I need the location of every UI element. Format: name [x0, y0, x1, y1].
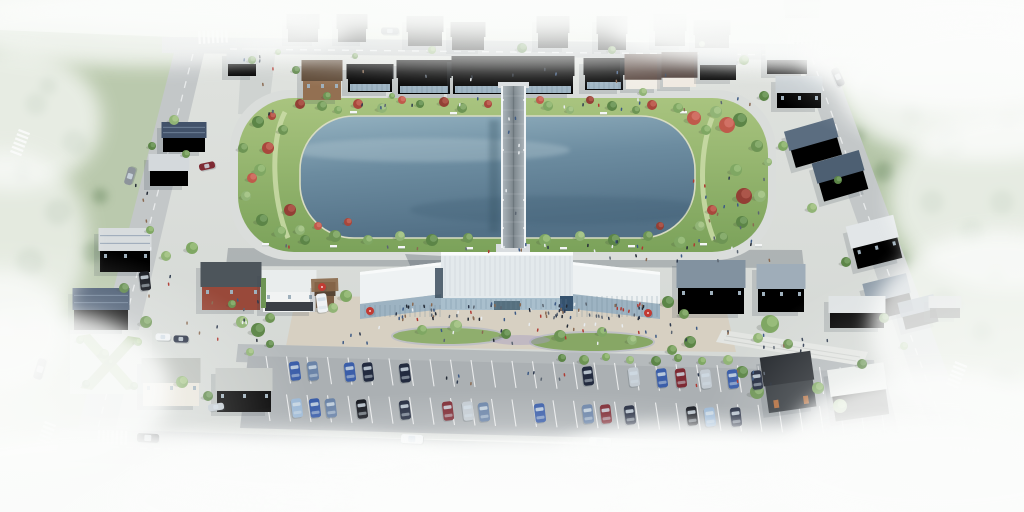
house: [144, 154, 190, 190]
tree-highlight: [578, 232, 584, 238]
tree-highlight: [249, 348, 254, 353]
parked-car: [699, 369, 713, 390]
car-windshield: [408, 436, 415, 443]
person-dot: [411, 104, 413, 107]
tree-highlight: [714, 107, 721, 114]
person-dot: [763, 334, 765, 337]
parked-car: [315, 293, 329, 314]
person-dot: [465, 247, 467, 250]
tree-highlight: [398, 232, 404, 238]
tree-highlight: [244, 192, 250, 198]
person-dot: [803, 344, 805, 347]
car-windshield: [160, 335, 165, 339]
house: [771, 76, 823, 112]
blossom-highlight: [317, 222, 322, 227]
person-dot: [763, 178, 765, 181]
bench: [466, 247, 473, 249]
person-dot: [135, 184, 137, 187]
blossom-highlight: [250, 174, 256, 180]
bench: [560, 247, 567, 249]
tree-highlight: [786, 340, 792, 346]
person-dot: [525, 243, 527, 246]
tree-highlight: [303, 236, 309, 242]
tree-highlight: [206, 392, 212, 398]
shop-building: [342, 64, 394, 96]
parked-car: [290, 398, 304, 419]
glass-accent: [435, 268, 443, 298]
tree-highlight: [666, 297, 673, 304]
window: [267, 295, 270, 299]
blossom-highlight: [710, 206, 716, 212]
tree-highlight: [682, 310, 688, 316]
building-roof: [347, 64, 394, 79]
person-dot: [752, 377, 754, 380]
person-dot: [417, 247, 419, 250]
tree-highlight: [460, 104, 466, 110]
person-dot: [763, 345, 765, 348]
tree-highlight: [391, 93, 395, 97]
window: [798, 96, 801, 100]
tree-highlight: [605, 353, 610, 358]
tree-highlight: [646, 232, 652, 238]
person-dot: [681, 254, 683, 257]
parked-car: [674, 368, 688, 389]
window: [780, 292, 783, 296]
tree-highlight: [582, 356, 588, 362]
person-dot: [638, 306, 640, 309]
person-dot: [288, 245, 290, 248]
water-reflection: [410, 196, 710, 224]
window: [221, 394, 224, 398]
window: [206, 290, 209, 294]
fog-patch: [570, 426, 750, 474]
bridge-lamp: [523, 149, 525, 151]
building-roof: [677, 260, 746, 288]
house: [94, 228, 152, 276]
tree-highlight: [543, 235, 550, 242]
grass-mound: [393, 328, 503, 344]
fog-patch: [250, 444, 430, 488]
parked-car: [361, 362, 375, 383]
tree-highlight: [419, 100, 424, 105]
person-dot: [563, 105, 565, 108]
window: [254, 290, 257, 294]
window: [170, 386, 173, 390]
person-dot: [596, 314, 598, 318]
tree-highlight: [738, 114, 746, 122]
tree-highlight: [781, 142, 787, 148]
tree-highlight: [816, 383, 823, 390]
umbrella-pole: [321, 286, 323, 288]
person-dot: [561, 315, 563, 319]
person-dot: [671, 331, 673, 334]
person-dot: [148, 294, 150, 297]
bench: [330, 245, 337, 247]
person-dot: [604, 328, 606, 331]
building-roof: [776, 76, 823, 93]
tree-highlight: [122, 284, 128, 290]
tree-highlight: [678, 237, 685, 244]
tree-highlight: [258, 165, 265, 172]
blossom-highlight: [347, 218, 352, 223]
tree-highlight: [755, 141, 762, 148]
person-dot: [473, 317, 475, 320]
tree-highlight: [149, 226, 154, 231]
bench: [628, 245, 635, 247]
person-dot: [544, 68, 546, 71]
person-dot: [696, 327, 698, 330]
tree-highlight: [269, 340, 274, 345]
field-tree-blob: [92, 188, 108, 204]
person-dot: [285, 244, 287, 248]
blossom-highlight: [266, 143, 273, 150]
green-wall: [261, 278, 266, 308]
bench: [350, 111, 357, 113]
tree-highlight: [610, 102, 616, 108]
tree-highlight: [144, 317, 151, 324]
person-dot: [494, 304, 496, 308]
person-dot: [505, 189, 507, 192]
parked-car: [288, 361, 302, 382]
person-dot: [515, 212, 517, 215]
blossom-highlight: [650, 101, 656, 107]
tree-highlight: [430, 235, 437, 242]
tree-highlight: [860, 360, 866, 366]
tree-highlight: [268, 314, 274, 320]
person-dot: [616, 240, 618, 243]
tree-highlight: [331, 304, 337, 310]
center-hall-roof-edge: [441, 252, 573, 256]
car-windshield: [178, 337, 183, 341]
building-roof: [757, 264, 806, 289]
parked-car: [138, 271, 152, 292]
bridge-lamp: [502, 227, 504, 229]
person-dot: [698, 239, 700, 242]
window: [815, 96, 818, 100]
tree-highlight: [569, 106, 574, 111]
person-dot: [616, 71, 618, 74]
person-dot: [773, 346, 775, 349]
tree-highlight: [333, 231, 340, 238]
tree-highlight: [320, 102, 326, 108]
tree-highlight: [466, 234, 472, 240]
window: [762, 292, 765, 296]
tree-highlight: [762, 92, 768, 98]
tree-highlight: [837, 176, 842, 181]
bench: [262, 243, 269, 245]
tree-highlight: [677, 354, 682, 359]
person-dot: [540, 314, 542, 317]
tree-highlight: [278, 227, 285, 234]
blossom-highlight: [741, 189, 751, 199]
person-dot: [623, 308, 625, 311]
person-dot: [655, 335, 657, 338]
tree-highlight: [704, 126, 710, 132]
person-dot: [256, 339, 258, 343]
tree-highlight: [670, 346, 676, 352]
tree-highlight: [726, 356, 732, 362]
person-dot: [468, 305, 470, 308]
window: [265, 394, 268, 398]
wooden-lodge: [297, 60, 343, 104]
person-dot: [362, 70, 364, 73]
window: [798, 292, 801, 296]
tree-highlight: [758, 191, 765, 198]
parked-car: [477, 402, 491, 423]
blossom-highlight: [539, 96, 544, 101]
window: [230, 290, 233, 294]
person-dot: [380, 106, 382, 109]
bench: [700, 243, 707, 245]
blossom-highlight: [692, 112, 700, 120]
person-dot: [737, 250, 739, 253]
tree-highlight: [688, 337, 695, 344]
window: [144, 254, 147, 258]
tree-highlight: [260, 215, 267, 222]
person-dot: [481, 317, 483, 320]
parked-car: [533, 403, 547, 424]
tree-highlight: [420, 326, 426, 332]
tree-highlight: [344, 291, 351, 298]
blossom-highlight: [659, 222, 664, 227]
person-dot: [491, 302, 493, 305]
parked-car: [627, 367, 641, 388]
water-reflection: [290, 138, 570, 162]
building-roof: [262, 270, 317, 292]
tree-highlight: [180, 377, 187, 384]
bridge-lamp: [502, 199, 504, 201]
building-roof: [162, 122, 207, 138]
tree-highlight: [810, 204, 816, 210]
dark-facade: [265, 302, 313, 311]
tree-highlight: [701, 357, 706, 362]
person-dot: [398, 317, 400, 320]
parked-car: [599, 404, 613, 425]
tree-highlight: [654, 357, 660, 363]
car: [173, 335, 189, 344]
parked-car: [581, 404, 595, 425]
person-dot: [704, 184, 706, 188]
bridge-lamp: [502, 149, 504, 151]
bridge-lamp: [523, 227, 525, 229]
glass-accent: [560, 296, 573, 311]
person-dot: [665, 74, 667, 77]
person-dot: [573, 328, 575, 331]
blossom-highlight: [589, 96, 594, 101]
tree-highlight: [164, 252, 170, 258]
pond-footbridge: [496, 82, 530, 252]
bench: [398, 246, 405, 248]
parked-car: [750, 370, 764, 391]
tree-highlight: [629, 356, 634, 361]
tree-highlight: [190, 243, 197, 250]
house-garden: [752, 264, 806, 316]
umbrella-pole: [369, 310, 371, 312]
tree-highlight: [676, 104, 682, 110]
window: [321, 84, 324, 88]
building-roof: [302, 60, 343, 81]
tree-highlight: [256, 117, 263, 124]
architectural-rendering: [0, 0, 1024, 512]
parked-car: [355, 399, 369, 420]
parked-car: [324, 398, 338, 419]
person-dot: [826, 339, 828, 343]
tree-highlight: [185, 150, 190, 155]
tree-highlight: [767, 158, 772, 163]
person-dot: [561, 304, 563, 307]
person-dot: [633, 313, 635, 317]
window: [682, 291, 685, 295]
person-dot: [597, 342, 599, 345]
blossom-highlight: [401, 96, 406, 101]
person-dot: [217, 338, 219, 341]
parked-car: [398, 363, 412, 384]
person-dot: [272, 110, 274, 113]
person-dot: [272, 67, 274, 70]
window: [307, 84, 310, 88]
building-roof: [99, 228, 152, 251]
tree-highlight: [756, 334, 762, 340]
person-dot: [342, 341, 344, 344]
window: [104, 254, 107, 258]
parked-car: [581, 366, 595, 387]
person-dot: [402, 315, 404, 318]
tree-highlight: [740, 367, 747, 374]
person-dot: [560, 308, 562, 311]
storefront-glass: [350, 84, 390, 91]
person-dot: [617, 307, 619, 310]
blossom-highlight: [298, 100, 304, 106]
parked-car: [308, 398, 322, 419]
modern-cafe: [257, 270, 317, 316]
tree-highlight: [281, 126, 287, 132]
person-dot: [737, 370, 739, 373]
bridge-lamp: [502, 99, 504, 101]
tree-highlight: [151, 142, 156, 147]
car-windshield: [213, 405, 219, 410]
tree-highlight: [630, 336, 636, 342]
person-dot: [564, 309, 566, 312]
person-dot: [752, 223, 754, 226]
window: [781, 96, 784, 100]
person-dot: [504, 318, 506, 321]
tree-highlight: [295, 66, 300, 71]
person-dot: [456, 314, 458, 318]
window: [243, 394, 246, 398]
bench: [450, 112, 457, 114]
tree-highlight: [734, 165, 741, 172]
person-dot: [186, 321, 188, 324]
bridge-lamp: [523, 199, 525, 201]
tree-highlight: [635, 106, 640, 111]
person-dot: [408, 305, 410, 308]
blossom-highlight: [288, 205, 295, 212]
person-dot: [676, 259, 678, 262]
blossom-highlight: [487, 100, 492, 105]
person-dot: [243, 318, 245, 321]
parked-car: [306, 361, 320, 382]
car: [155, 333, 171, 342]
window: [710, 291, 713, 295]
parked-car: [685, 406, 699, 427]
building-roof: [201, 262, 262, 287]
window: [193, 386, 196, 390]
tree-highlight: [546, 102, 552, 108]
center-hall-roof: [441, 252, 573, 298]
person-dot: [412, 302, 414, 306]
person-dot: [431, 303, 433, 307]
parked-car: [398, 400, 412, 421]
tree-highlight: [740, 217, 747, 224]
person-dot: [479, 318, 481, 321]
parked-car: [623, 405, 637, 426]
tree-highlight: [454, 321, 461, 328]
window: [738, 291, 741, 295]
person-dot: [150, 247, 152, 250]
blossom-highlight: [724, 118, 734, 128]
tree-highlight: [642, 88, 647, 93]
tree-highlight: [298, 226, 304, 232]
umbrella-pole: [647, 312, 649, 314]
tree-highlight: [698, 222, 704, 228]
tree-highlight: [337, 106, 342, 111]
person-dot: [446, 376, 448, 379]
tree-highlight: [366, 236, 372, 242]
tree-highlight: [231, 300, 236, 305]
fog-patch: [240, 24, 800, 68]
blossom-highlight: [356, 100, 362, 106]
building-roof: [216, 368, 273, 391]
tree-highlight: [844, 258, 850, 264]
person-dot: [520, 248, 522, 251]
person-dot: [758, 211, 760, 214]
person-dot: [578, 308, 580, 312]
parked-car: [655, 368, 669, 389]
site-plan-svg: [0, 0, 1024, 512]
person-dot: [545, 311, 547, 314]
tree-highlight: [241, 144, 247, 150]
bench: [600, 112, 607, 114]
person-dot: [614, 304, 616, 307]
person-dot: [431, 313, 433, 316]
field-tree-blob: [874, 162, 894, 182]
person-dot: [637, 98, 639, 101]
parked-car: [343, 362, 357, 383]
person-dot: [467, 317, 469, 320]
window: [124, 254, 127, 258]
tree-highlight: [326, 92, 331, 97]
tree-highlight: [256, 324, 264, 332]
window: [335, 84, 338, 88]
tree-highlight: [558, 331, 565, 338]
parked-car: [461, 401, 475, 422]
window: [288, 295, 291, 299]
solar-house: [157, 122, 207, 156]
person-dot: [512, 73, 514, 76]
bench: [755, 244, 762, 246]
parked-car: [441, 401, 455, 422]
tree-highlight: [504, 330, 510, 336]
tree-highlight: [561, 354, 566, 359]
bridge-lamp: [523, 99, 525, 101]
tree-highlight: [767, 316, 778, 327]
tree-highlight: [720, 233, 727, 240]
person-dot: [547, 246, 549, 249]
tree-highlight: [172, 116, 178, 122]
blossom-highlight: [442, 98, 448, 104]
person-dot: [477, 97, 479, 100]
bridge-shadow-on-water: [489, 120, 499, 232]
